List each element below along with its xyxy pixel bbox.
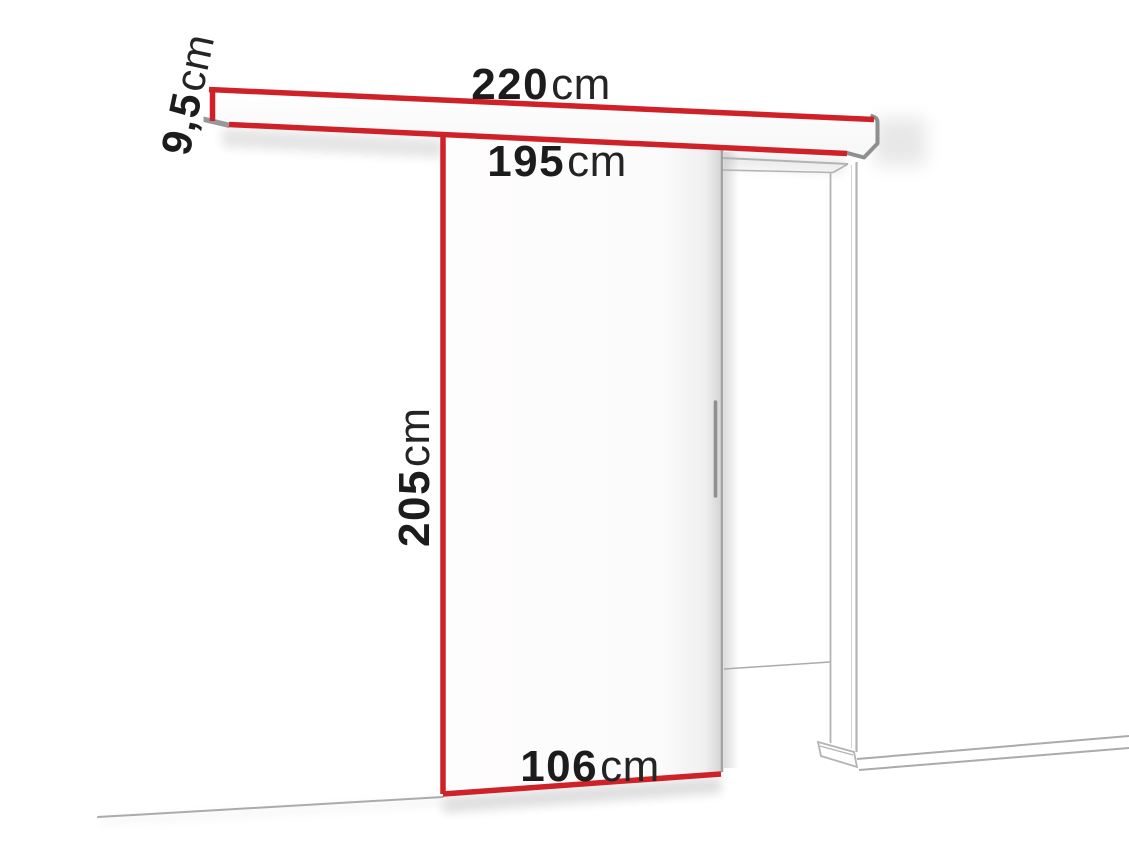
- label-door-height: 205cm: [390, 407, 439, 547]
- floor-line-right-upper: [857, 736, 1129, 759]
- label-track-width: 220cm: [471, 60, 611, 109]
- floor-line-behind-door: [724, 662, 830, 669]
- diagram-canvas: 220cm 195cm 106cm 205cm 9,5cm: [0, 0, 1129, 846]
- sliding-door-dimension-diagram: 220cm 195cm 106cm 205cm 9,5cm: [0, 0, 1129, 846]
- label-door-width: 106cm: [520, 742, 660, 791]
- door-right-shadow: [724, 152, 739, 768]
- door-face: [445, 132, 722, 795]
- door-panel: [443, 131, 722, 795]
- label-opening-width: 195cm: [487, 137, 627, 186]
- floor-left-shadow: [100, 799, 443, 824]
- floor-line-right-lower: [859, 748, 1129, 770]
- track-end-shadow: [874, 118, 926, 166]
